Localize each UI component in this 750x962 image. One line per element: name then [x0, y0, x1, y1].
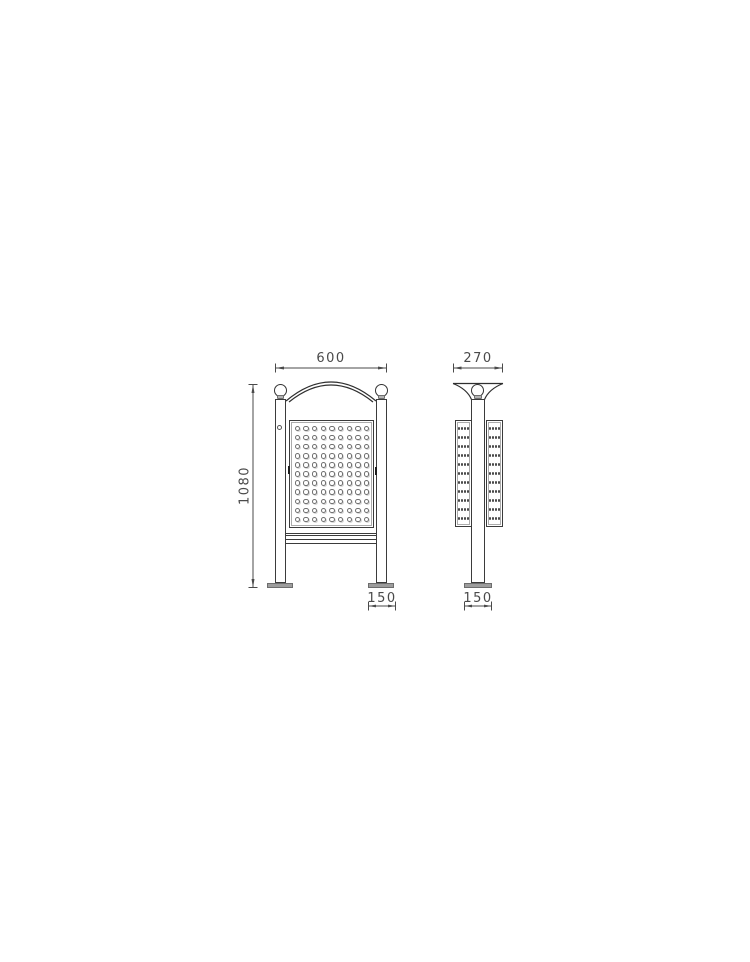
perforation-dot [464, 445, 466, 448]
perforation-dot [495, 454, 497, 457]
perforation-dot [458, 454, 460, 457]
perforation-dot [467, 472, 469, 475]
perforation-dot [489, 517, 491, 520]
perforation-dot [458, 445, 460, 448]
perforation-dot [492, 517, 494, 520]
perforation-dot [495, 499, 497, 502]
side-right-perforation-grid [489, 424, 501, 523]
perforation-dot [498, 472, 500, 475]
side-foot-plate [464, 583, 492, 588]
perforation-dot [461, 481, 463, 484]
perforation-dot [498, 445, 500, 448]
side-left-perforation-grid [458, 424, 470, 523]
perforation-dot [498, 508, 500, 511]
perforation-dot [464, 436, 466, 439]
perforation-dot [489, 454, 491, 457]
perforation-dot [495, 490, 497, 493]
perforation-dot [492, 490, 494, 493]
perforation-dot [458, 508, 460, 511]
perforation-dot [467, 517, 469, 520]
perforation-dot [467, 490, 469, 493]
perforation-dot [489, 427, 491, 430]
side-foot-dimension-line [460, 601, 496, 611]
perforation-dot [464, 472, 466, 475]
side-post [471, 399, 485, 583]
perforation-dot [458, 472, 460, 475]
perforation-dot [489, 490, 491, 493]
perforation-dot [467, 445, 469, 448]
perforation-dot [492, 454, 494, 457]
perforation-dot [492, 499, 494, 502]
perforation-dot [495, 481, 497, 484]
perforation-dot [498, 517, 500, 520]
perforation-dot [461, 490, 463, 493]
perforation-dot [464, 490, 466, 493]
perforation-dot [492, 463, 494, 466]
perforation-dot [464, 463, 466, 466]
perforation-dot [489, 463, 491, 466]
perforation-dot [467, 463, 469, 466]
perforation-dot [458, 463, 460, 466]
perforation-dot [458, 499, 460, 502]
side-view: 270 150 [0, 0, 750, 962]
perforation-dot [495, 463, 497, 466]
perforation-dot [458, 436, 460, 439]
perforation-dot [461, 499, 463, 502]
perforation-dot [498, 490, 500, 493]
perforation-dot [489, 472, 491, 475]
perforation-dot [464, 508, 466, 511]
perforation-dot [489, 445, 491, 448]
perforation-dot [458, 517, 460, 520]
perforation-dot [489, 481, 491, 484]
perforation-dot [489, 499, 491, 502]
perforation-dot [492, 472, 494, 475]
perforation-dot [467, 481, 469, 484]
perforation-dot [467, 508, 469, 511]
perforation-dot [495, 445, 497, 448]
perforation-dot [467, 427, 469, 430]
perforation-dot [464, 517, 466, 520]
perforation-dot [464, 454, 466, 457]
perforation-dot [461, 454, 463, 457]
perforation-dot [467, 436, 469, 439]
perforation-dot [461, 517, 463, 520]
perforation-dot [467, 499, 469, 502]
perforation-dot [492, 481, 494, 484]
technical-drawing-canvas: 600 1080 [0, 0, 750, 962]
perforation-dot [461, 463, 463, 466]
perforation-dot [492, 508, 494, 511]
perforation-dot [461, 445, 463, 448]
perforation-dot [498, 436, 500, 439]
perforation-dot [498, 481, 500, 484]
perforation-dot [495, 427, 497, 430]
perforation-dot [464, 499, 466, 502]
perforation-dot [492, 445, 494, 448]
perforation-dot [498, 454, 500, 457]
perforation-dot [464, 427, 466, 430]
perforation-dot [498, 427, 500, 430]
perforation-dot [458, 490, 460, 493]
perforation-dot [492, 427, 494, 430]
perforation-dot [498, 463, 500, 466]
perforation-dot [461, 472, 463, 475]
perforation-dot [492, 436, 494, 439]
perforation-dot [467, 454, 469, 457]
perforation-dot [498, 499, 500, 502]
perforation-dot [461, 436, 463, 439]
perforation-dot [464, 481, 466, 484]
perforation-dot [458, 427, 460, 430]
side-depth-dimension-line [449, 363, 507, 373]
perforation-dot [495, 436, 497, 439]
perforation-dot [458, 481, 460, 484]
perforation-dot [489, 436, 491, 439]
perforation-dot [461, 427, 463, 430]
perforation-dot [461, 508, 463, 511]
perforation-dot [489, 508, 491, 511]
perforation-dot [495, 472, 497, 475]
perforation-dot [495, 508, 497, 511]
perforation-dot [495, 517, 497, 520]
